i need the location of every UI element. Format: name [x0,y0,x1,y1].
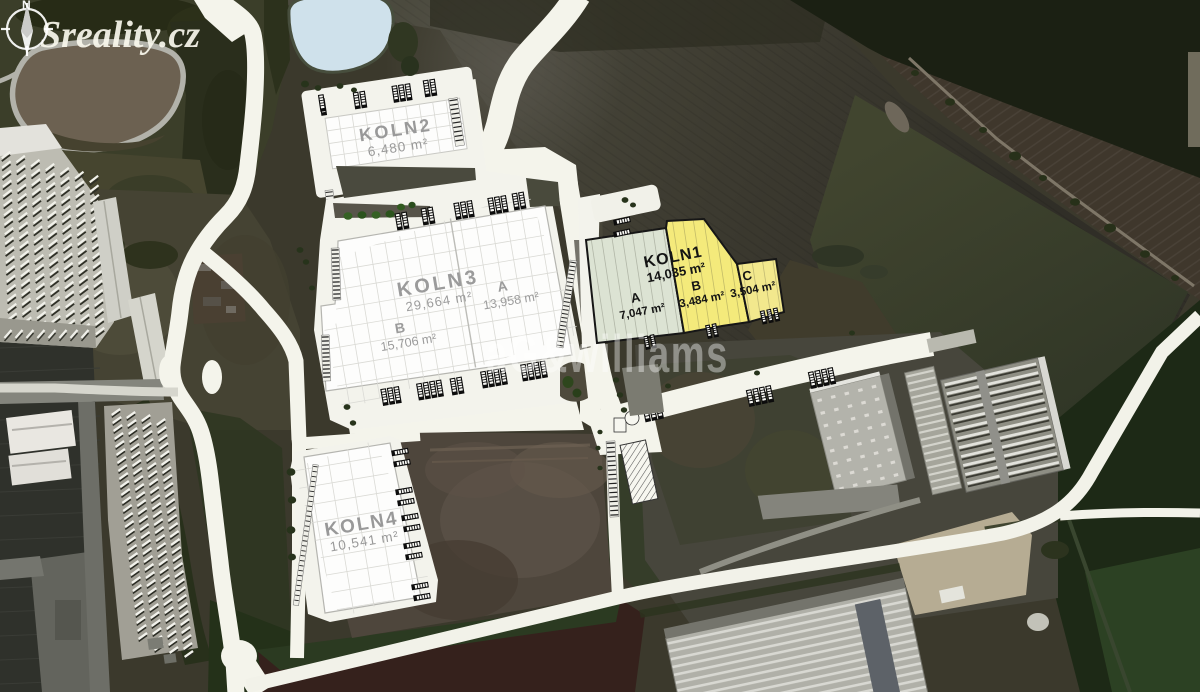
svg-text:N: N [22,0,31,12]
svg-text:aG&williams: aG&williams [486,324,729,384]
svg-text:Sreality.cz: Sreality.cz [40,14,200,56]
